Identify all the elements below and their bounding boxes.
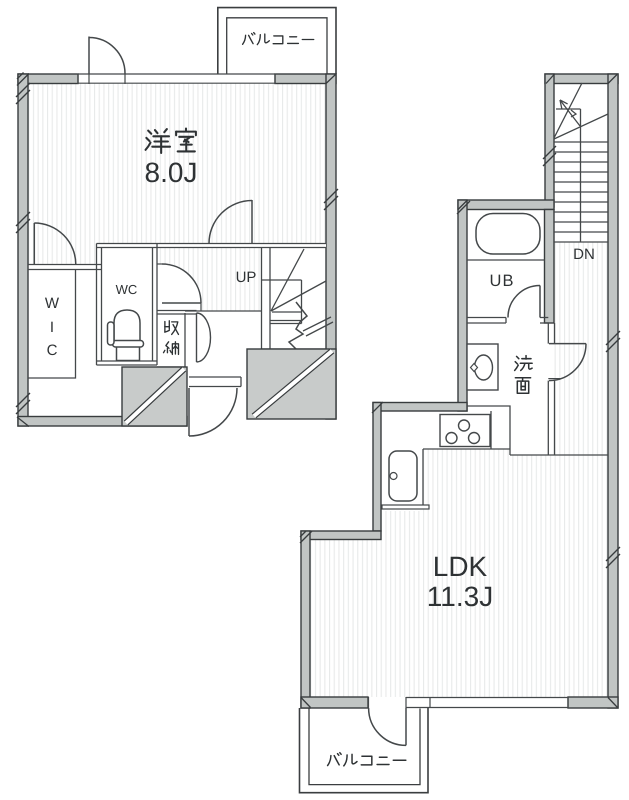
svg-text:DN: DN [573,246,595,263]
svg-text:8.0J: 8.0J [145,157,198,188]
svg-text:W: W [45,295,60,312]
svg-text:I: I [50,319,54,336]
svg-text:UP: UP [236,269,257,286]
svg-text:C: C [47,342,58,359]
svg-text:LDK: LDK [433,551,488,582]
svg-text:WC: WC [116,282,138,297]
svg-text:11.3J: 11.3J [427,581,493,612]
svg-text:UB: UB [490,272,515,290]
